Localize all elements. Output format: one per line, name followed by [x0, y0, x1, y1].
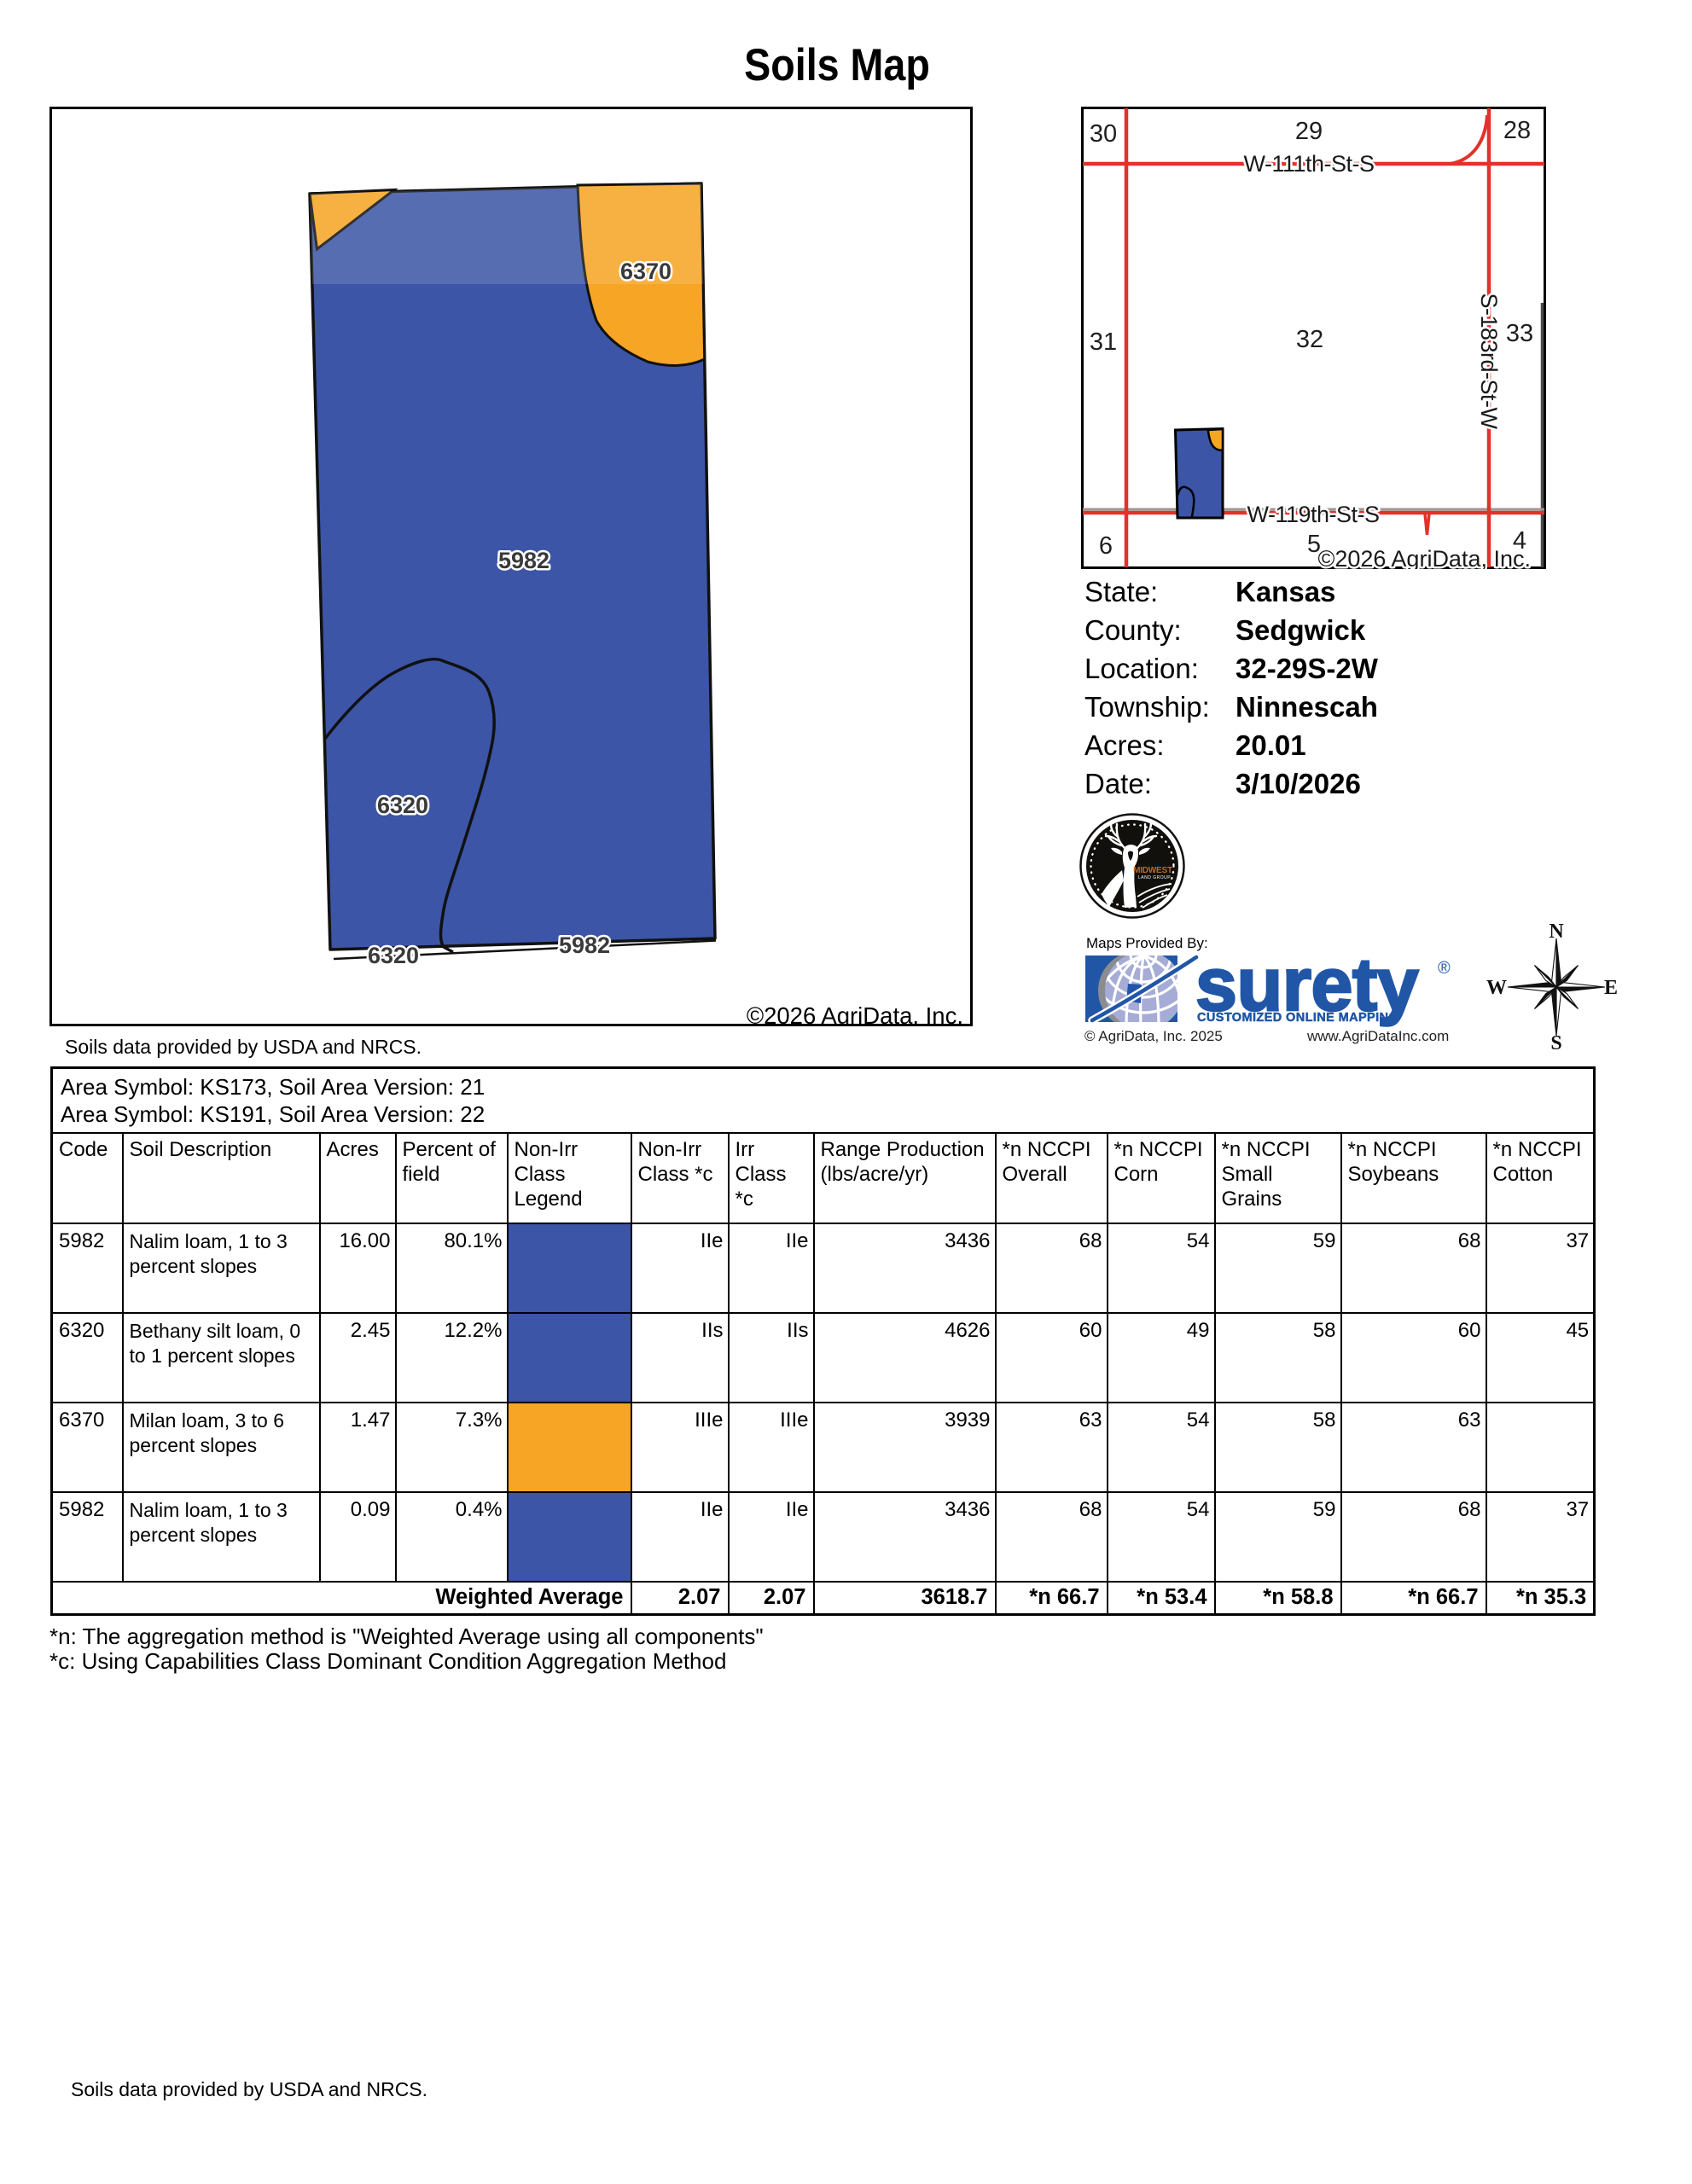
svg-text:©2026 AgriData, Inc.: ©2026 AgriData, Inc. — [747, 1002, 963, 1026]
svg-text:LAND GROUP: LAND GROUP — [1138, 875, 1171, 880]
svg-text:33: 33 — [1506, 320, 1533, 347]
svg-text:W-111th-St-S: W-111th-St-S — [1243, 151, 1374, 177]
svg-text:6320: 6320 — [368, 943, 419, 968]
svg-text:29: 29 — [1295, 118, 1323, 145]
svg-text:28: 28 — [1503, 117, 1531, 144]
svg-text:W-119th-St-S: W-119th-St-S — [1247, 502, 1379, 527]
svg-text:E: E — [1604, 977, 1618, 999]
svg-text:5982: 5982 — [559, 932, 610, 958]
svg-text:5982: 5982 — [498, 548, 549, 573]
svg-text:S-183rd-St-W: S-183rd-St-W — [1476, 293, 1502, 429]
svg-text:S: S — [1550, 1032, 1561, 1054]
svg-text:W: W — [1486, 977, 1507, 999]
svg-text:6320: 6320 — [377, 793, 428, 818]
svg-text:32: 32 — [1296, 326, 1323, 353]
svg-text:©2026 AgriData, Inc.: ©2026 AgriData, Inc. — [1317, 546, 1531, 569]
svg-text:MIDWEST: MIDWEST — [1133, 866, 1172, 875]
svg-text:CUSTOMIZED ONLINE MAPPING: CUSTOMIZED ONLINE MAPPING — [1197, 1011, 1398, 1025]
svg-text:N: N — [1549, 921, 1564, 943]
svg-text:®: ® — [1438, 959, 1451, 978]
svg-text:30: 30 — [1090, 120, 1117, 148]
svg-text:6: 6 — [1099, 532, 1113, 560]
svg-text:6370: 6370 — [620, 258, 672, 284]
svg-text:31: 31 — [1090, 328, 1117, 356]
